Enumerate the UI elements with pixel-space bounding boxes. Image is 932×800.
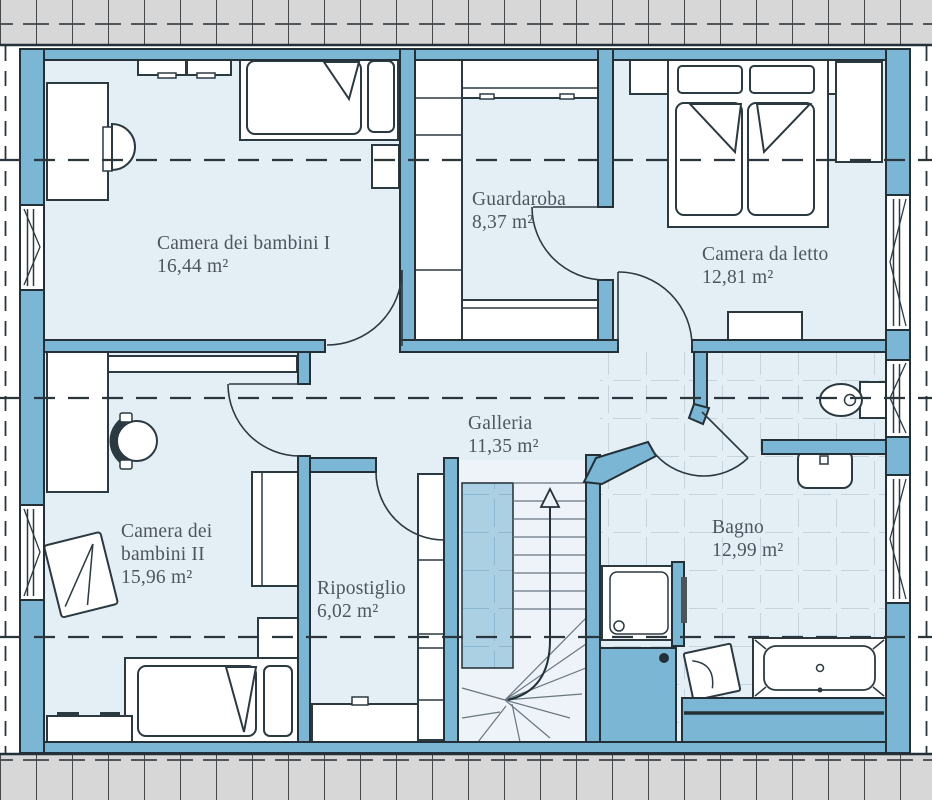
knob xyxy=(352,697,368,705)
window-left-2 xyxy=(20,505,44,600)
pillow xyxy=(264,666,292,736)
wardrobe xyxy=(252,472,298,586)
handle xyxy=(100,712,120,717)
room-area: 16,44 m² xyxy=(157,255,330,278)
wall-guardaroba-south xyxy=(400,340,618,352)
room-name: Camera dei bambini I xyxy=(157,232,330,255)
room-name: Bagno xyxy=(712,516,783,539)
wall-bambini1-south xyxy=(44,340,325,352)
room-label-ripostiglio: Ripostiglio 6,02 m² xyxy=(317,577,406,623)
handle xyxy=(560,94,574,99)
nightstand xyxy=(372,145,399,188)
toilet xyxy=(820,382,886,418)
stool xyxy=(684,644,741,701)
room-name: Camera da letto xyxy=(702,243,828,266)
wall-stairs-bagno xyxy=(586,455,600,742)
room-area: 15,96 m² xyxy=(121,566,253,589)
room-label-camera-bambini-1: Camera dei bambini I 16,44 m² xyxy=(157,232,330,278)
room-label-camera-bambini-2: Camera dei bambini II 15,96 m² xyxy=(121,520,253,589)
cabinet-handle xyxy=(158,73,176,78)
floor-plan-drawing xyxy=(0,0,932,800)
wall-ripostiglio-stairs xyxy=(444,458,458,742)
desk xyxy=(47,352,108,492)
roof-band-top xyxy=(0,0,932,45)
room-label-camera-da-letto: Camera da letto 12,81 m² xyxy=(702,243,828,289)
low-sideboard xyxy=(47,716,132,742)
room-name: Ripostiglio xyxy=(317,577,406,600)
room-name: Guardaroba xyxy=(472,188,566,211)
double-bed xyxy=(668,57,828,227)
single-bed xyxy=(125,658,298,742)
desk-chair-seat xyxy=(103,127,112,171)
room-label-bagno: Bagno 12,99 m² xyxy=(712,516,783,562)
floor-plan: Camera dei bambini I 16,44 m² Guardaroba… xyxy=(0,0,932,800)
room-name: Camera dei bambini II xyxy=(121,520,253,566)
wall-bagno-stub xyxy=(694,352,707,408)
wardrobe xyxy=(836,62,882,162)
wall-exterior-top xyxy=(20,49,910,60)
sink xyxy=(798,450,852,488)
wall-sink-half xyxy=(762,440,886,454)
cabinet-handle xyxy=(197,73,215,78)
shower xyxy=(602,566,676,640)
room-area: 8,37 m² xyxy=(472,211,566,234)
roof-band-bottom xyxy=(0,754,932,800)
wall-exterior-left xyxy=(20,49,44,753)
pillow xyxy=(368,61,394,132)
room-label-galleria: Galleria 11,35 m² xyxy=(468,412,539,458)
wall-galleria-ripostiglio xyxy=(310,458,376,472)
shaft-vent xyxy=(659,653,669,663)
room-area: 11,35 m² xyxy=(468,435,539,458)
knee-wall-band xyxy=(682,698,886,742)
room-area: 12,99 m² xyxy=(712,539,783,562)
window-left-1 xyxy=(20,205,44,290)
room-area: 6,02 m² xyxy=(317,600,406,623)
wall-exterior-bottom xyxy=(20,742,910,753)
wall-letto-bagno xyxy=(692,340,886,352)
shower-door-handle xyxy=(681,577,687,623)
bathtub xyxy=(753,638,886,698)
sideboard xyxy=(462,300,598,340)
room-name: Galleria xyxy=(468,412,539,435)
pillow xyxy=(678,66,742,93)
handle xyxy=(57,712,79,717)
wall-guardaroba-letto-upper xyxy=(598,49,613,207)
wardrobe-top xyxy=(462,58,598,98)
room-area: 12,81 m² xyxy=(702,266,828,289)
stair-void xyxy=(462,483,513,668)
wall-bambini2-ripostiglio xyxy=(298,456,310,742)
window-right-3 xyxy=(886,475,910,603)
wall-shelf xyxy=(108,356,297,372)
wardrobe-column xyxy=(415,60,462,340)
room-label-guardaroba: Guardaroba 8,37 m² xyxy=(472,188,566,234)
window-right-1 xyxy=(886,195,910,330)
single-bed xyxy=(240,53,398,140)
counter xyxy=(312,704,418,742)
handle xyxy=(480,94,494,99)
nightstand xyxy=(258,618,298,660)
pillow xyxy=(750,66,814,93)
desk xyxy=(47,83,108,200)
